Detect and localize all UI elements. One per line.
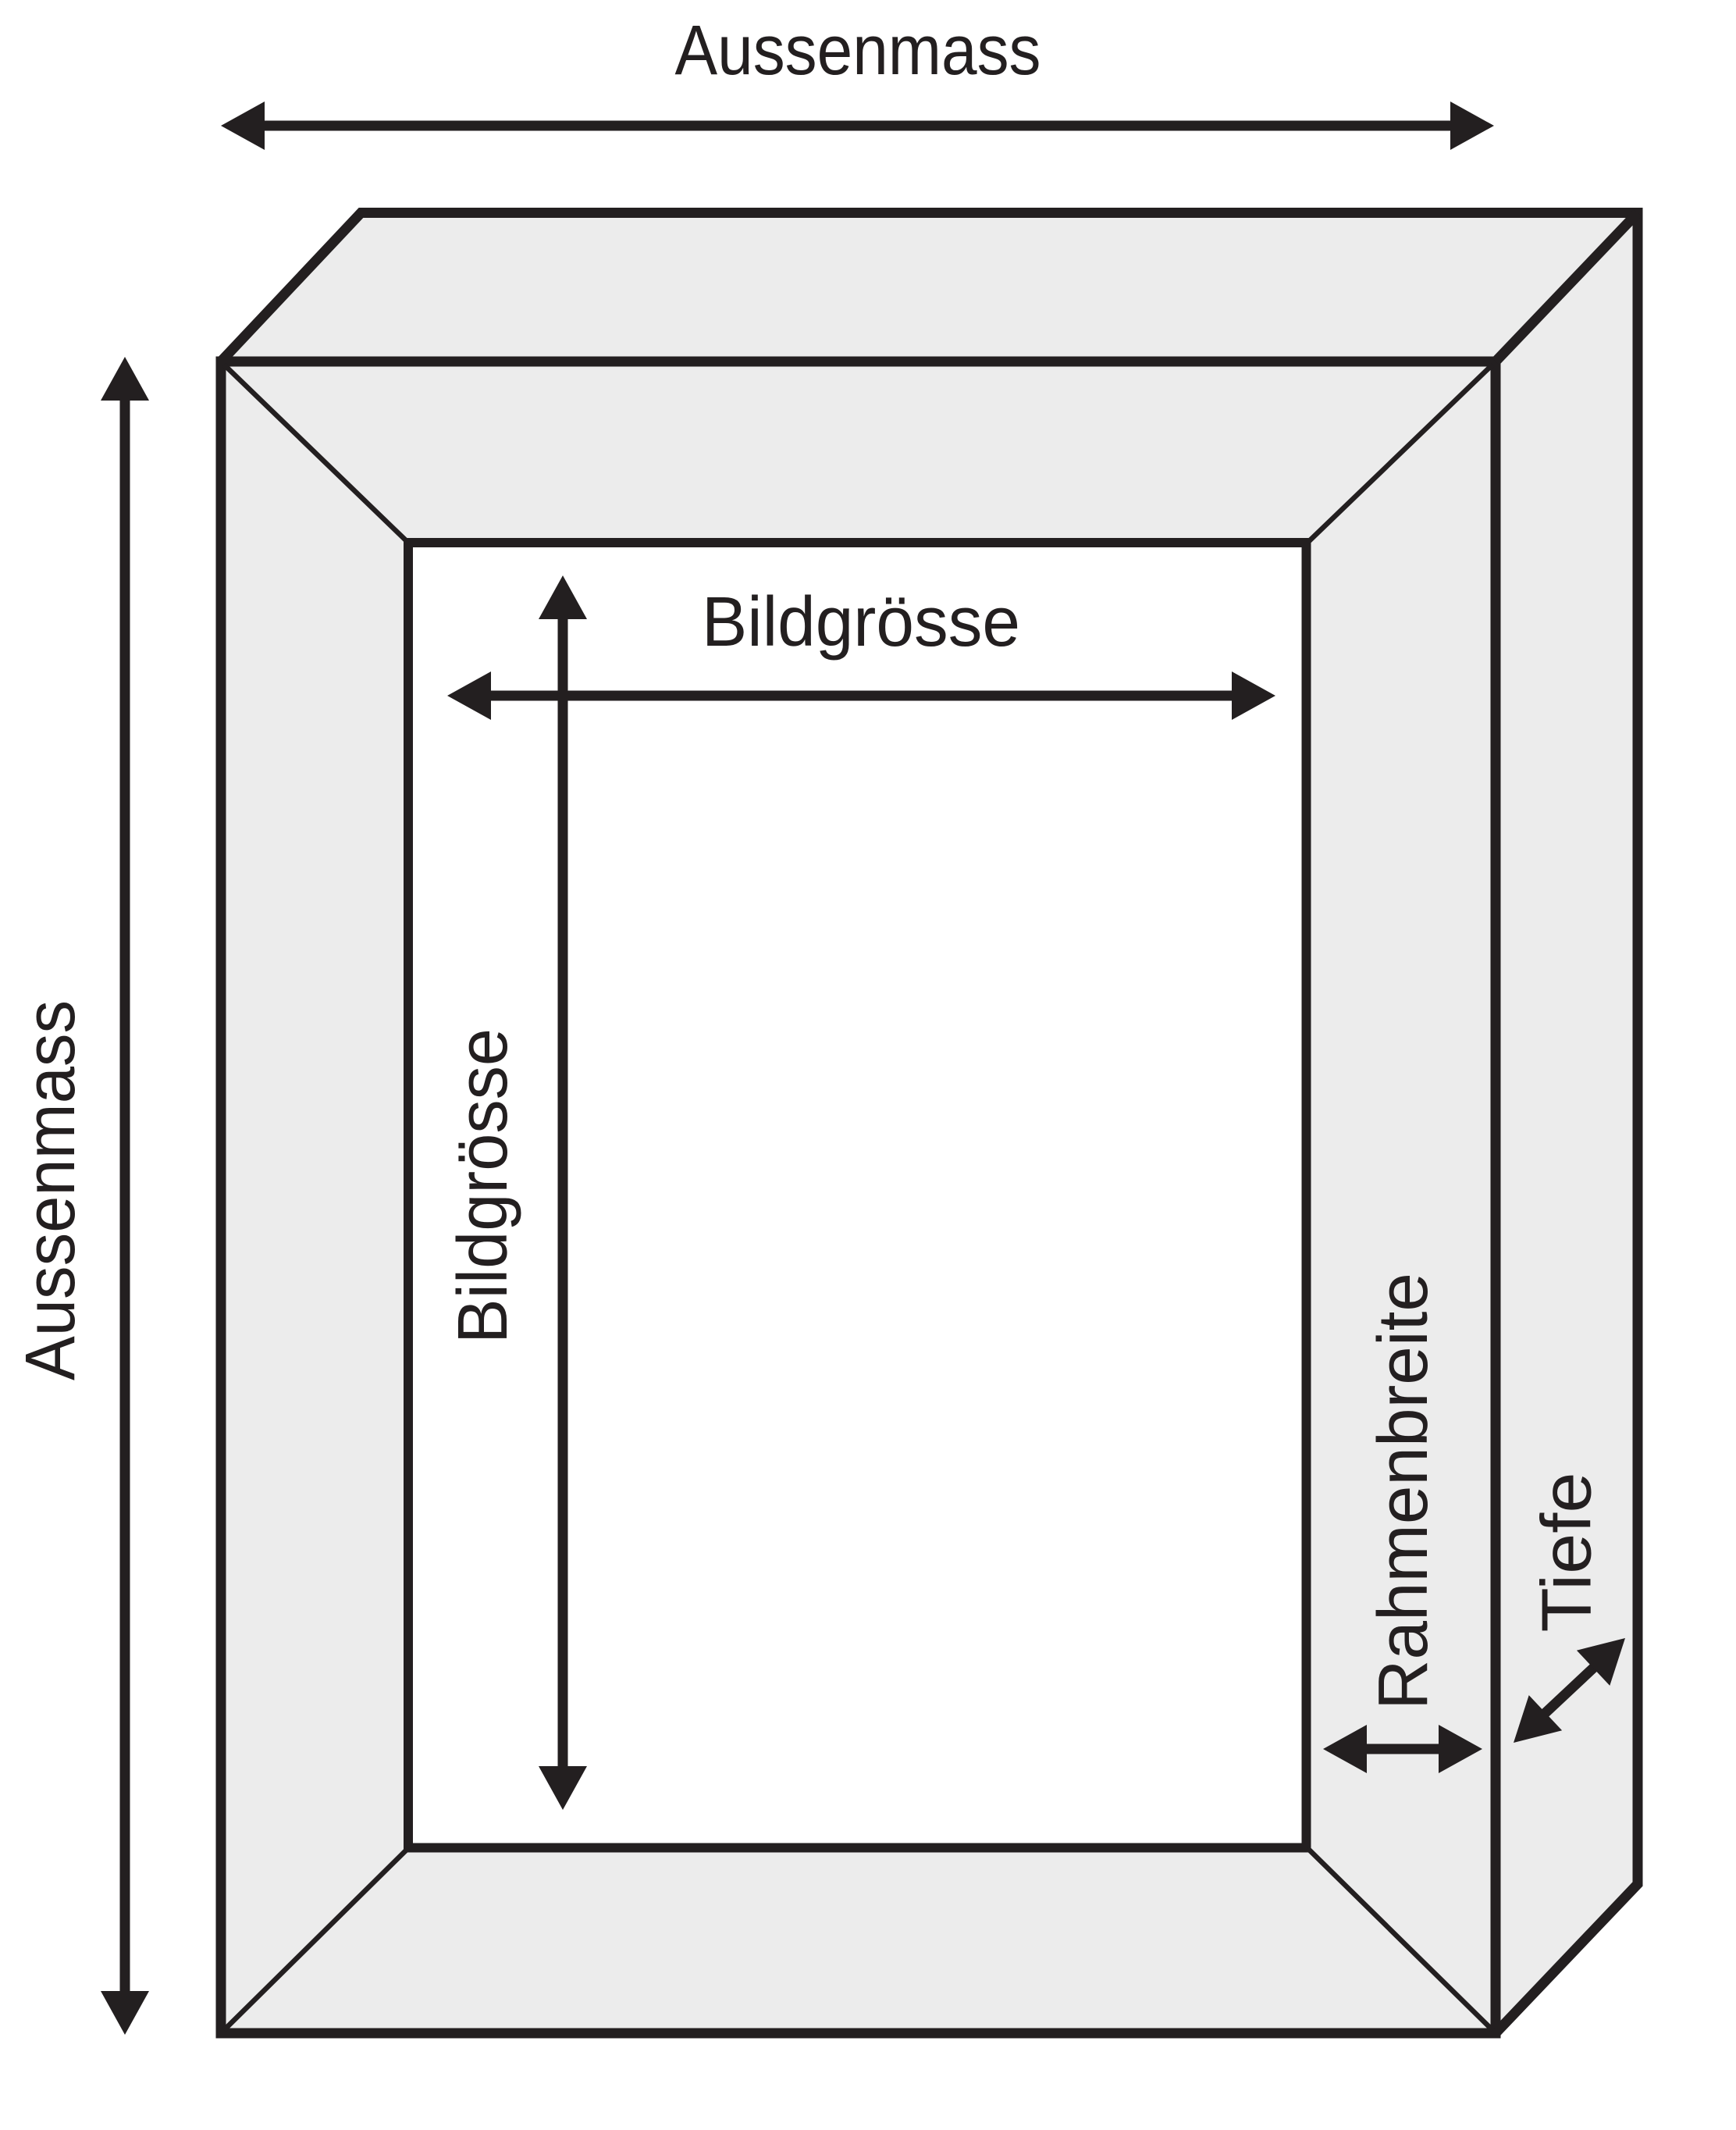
svg-text:Aussenmass: Aussenmass: [12, 1000, 90, 1380]
svg-text:Aussenmass: Aussenmass: [675, 12, 1041, 90]
svg-text:Tiefe: Tiefe: [1528, 1473, 1606, 1633]
svg-text:Bildgrösse: Bildgrösse: [444, 1028, 522, 1344]
svg-text:Rahmenbreite: Rahmenbreite: [1364, 1273, 1443, 1710]
svg-text:Bildgrösse: Bildgrösse: [702, 583, 1020, 661]
